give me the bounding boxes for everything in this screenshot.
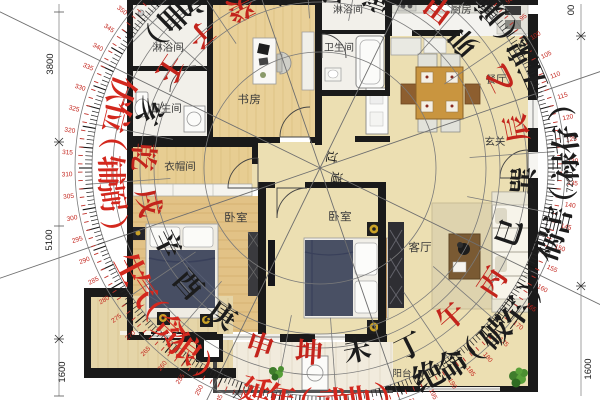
svg-text:00: 00 <box>566 5 577 16</box>
svg-text:5100: 5100 <box>44 229 55 250</box>
svg-text:1600: 1600 <box>583 358 594 379</box>
svg-text:315: 315 <box>62 149 74 157</box>
svg-text:1600: 1600 <box>57 361 68 382</box>
svg-text:7200: 7200 <box>565 171 576 192</box>
svg-text:305: 305 <box>63 193 75 201</box>
svg-text:3800: 3800 <box>45 53 56 74</box>
svg-text:310: 310 <box>62 171 73 178</box>
